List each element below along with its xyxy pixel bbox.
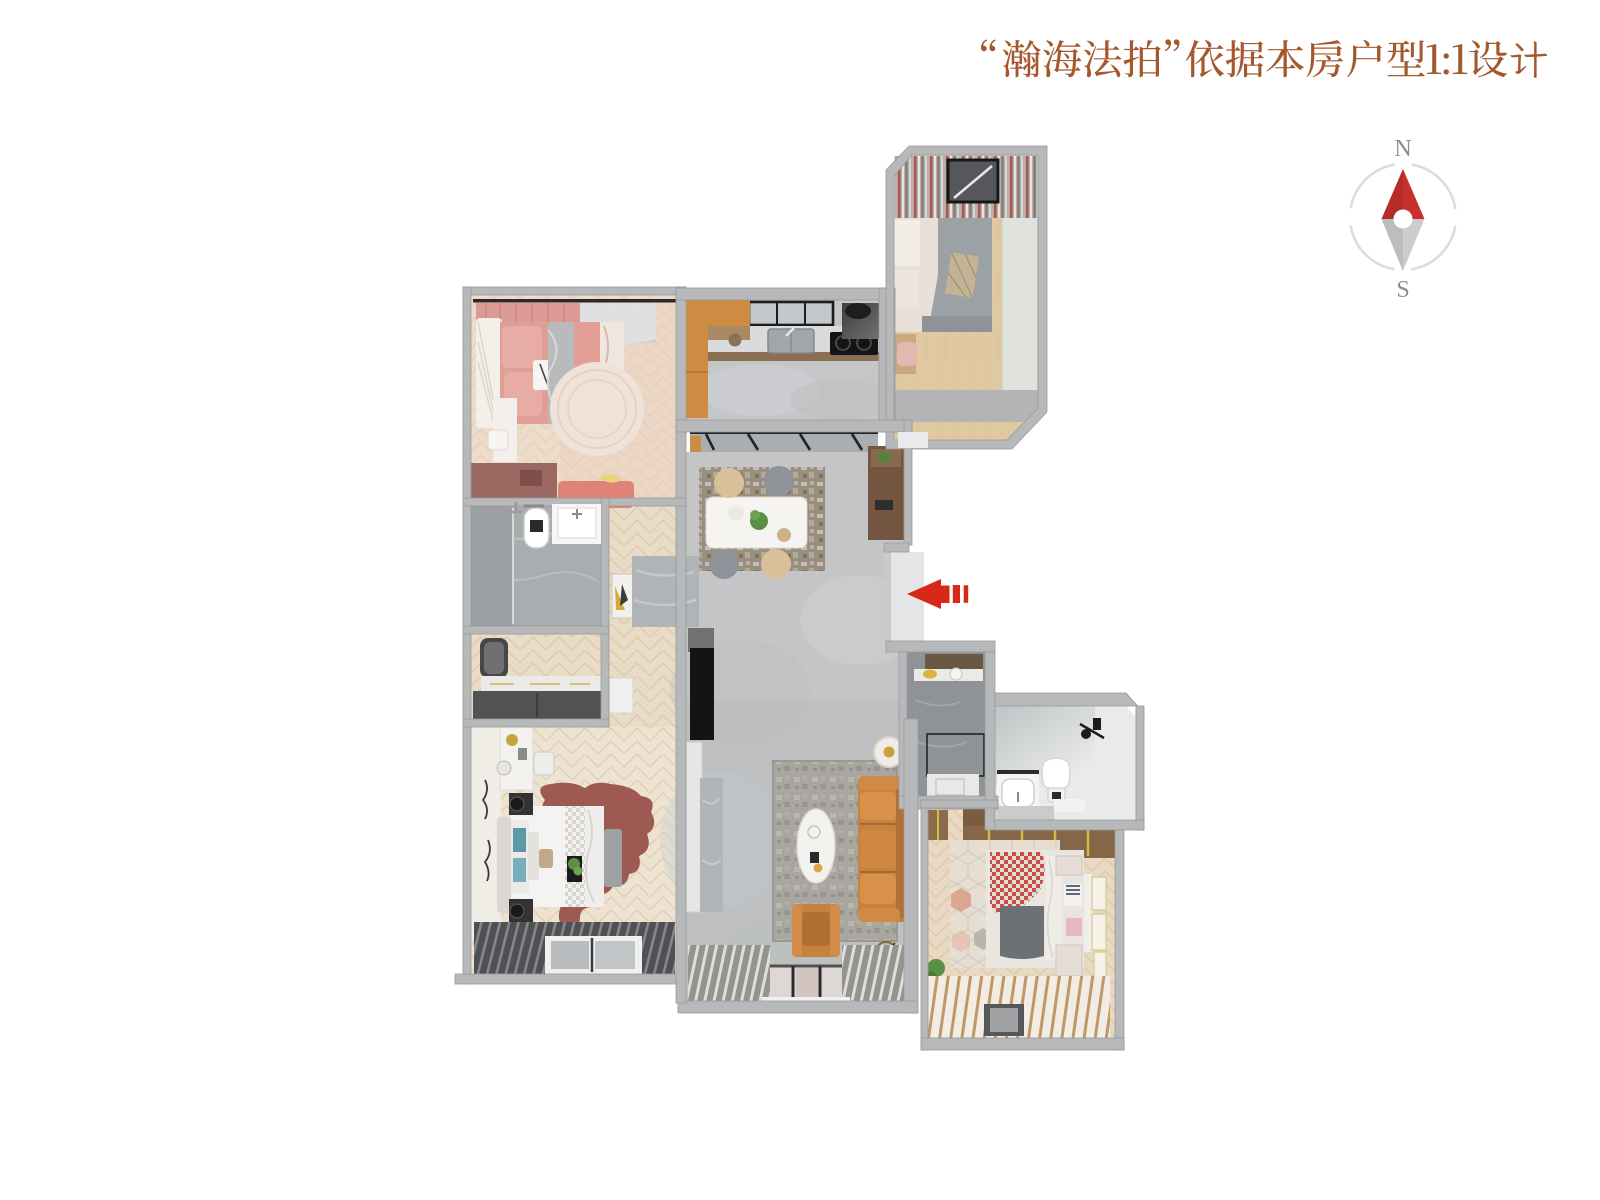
svg-text:N: N bbox=[1394, 136, 1411, 162]
svg-text:S: S bbox=[1396, 277, 1409, 303]
